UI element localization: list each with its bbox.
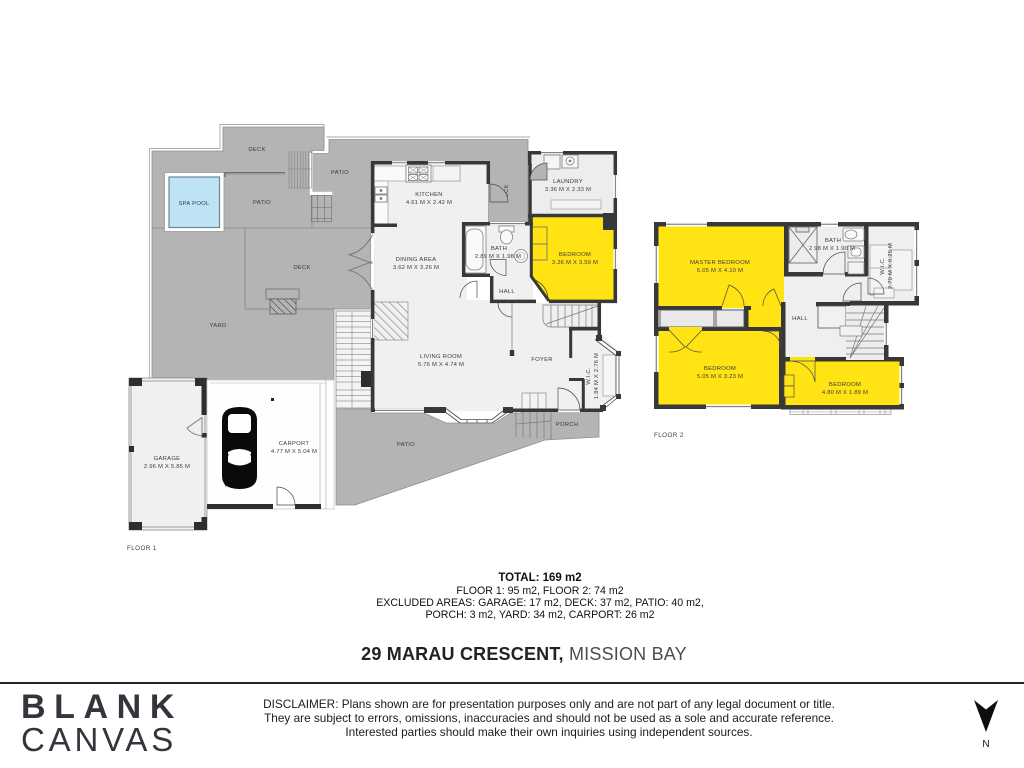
svg-text:TOTAL: 169 m2: TOTAL: 169 m2	[498, 572, 581, 584]
svg-text:DECK: DECK	[248, 147, 265, 153]
svg-text:CARPORT: CARPORT	[279, 441, 310, 447]
svg-text:W.I.C.: W.I.C.	[586, 367, 592, 385]
svg-text:2.98 M X 1.90 M: 2.98 M X 1.90 M	[809, 246, 855, 252]
svg-text:2.89 M X 1.98 M: 2.89 M X 1.98 M	[475, 254, 521, 260]
svg-text:FLOOR 1: 95 m2, FLOOR 2: 74 m2: FLOOR 1: 95 m2, FLOOR 2: 74 m2	[456, 585, 623, 597]
svg-text:DECK: DECK	[293, 265, 310, 271]
svg-text:HALL: HALL	[499, 289, 515, 295]
svg-text:SPA POOL: SPA POOL	[178, 201, 210, 207]
svg-text:W.I.C.: W.I.C.	[880, 257, 886, 275]
svg-text:PATIO: PATIO	[397, 442, 415, 448]
svg-text:DISCLAIMER: Plans shown are fo: DISCLAIMER: Plans shown are for presenta…	[263, 697, 835, 711]
svg-text:Interested parties should make: Interested parties should make their own…	[345, 725, 752, 739]
svg-text:FLOOR 2: FLOOR 2	[654, 432, 684, 439]
svg-text:4.80 M X 1.89 M: 4.80 M X 1.89 M	[822, 390, 868, 396]
svg-text:HALL: HALL	[792, 316, 808, 322]
svg-text:BATH: BATH	[825, 238, 841, 244]
svg-text:LIVING ROOM: LIVING ROOM	[420, 354, 462, 360]
svg-text:4.77 M X 5.04 M: 4.77 M X 5.04 M	[271, 449, 317, 455]
svg-text:5.05 M X 4.10 M: 5.05 M X 4.10 M	[697, 268, 743, 274]
svg-text:BATH: BATH	[491, 246, 507, 252]
svg-text:1.84 M X 2.76 M: 1.84 M X 2.76 M	[594, 353, 600, 399]
svg-text:FOYER: FOYER	[531, 357, 553, 363]
svg-text:PORCH: PORCH	[556, 422, 579, 428]
svg-text:N: N	[982, 739, 989, 750]
svg-text:BEDROOM: BEDROOM	[829, 382, 861, 388]
svg-text:MASTER BEDROOM: MASTER BEDROOM	[690, 260, 750, 266]
svg-text:YARD: YARD	[210, 323, 227, 329]
svg-text:GARAGE: GARAGE	[154, 456, 181, 462]
svg-text:2.70 M X 0.25 M: 2.70 M X 0.25 M	[888, 243, 894, 289]
svg-text:CANVAS: CANVAS	[21, 721, 177, 758]
svg-text:PATIO: PATIO	[253, 200, 271, 206]
svg-text:5.76 M X 4.74 M: 5.76 M X 4.74 M	[418, 362, 464, 368]
svg-text:DINING AREA: DINING AREA	[396, 257, 437, 263]
svg-text:EXCLUDED AREAS: GARAGE: 17 m2,: EXCLUDED AREAS: GARAGE: 17 m2, DECK: 37 …	[376, 597, 704, 609]
svg-text:FLOOR 1: FLOOR 1	[127, 545, 157, 552]
svg-text:4.61 M X 2.42 M: 4.61 M X 2.42 M	[406, 200, 452, 206]
svg-text:5.05 M X 3.23 M: 5.05 M X 3.23 M	[697, 374, 743, 380]
svg-text:KITCHEN: KITCHEN	[415, 192, 443, 198]
svg-text:They are subject to errors, om: They are subject to errors, omissions, i…	[264, 711, 834, 725]
svg-text:3.36 M X 3.59 M: 3.36 M X 3.59 M	[552, 260, 598, 266]
svg-text:BEDROOM: BEDROOM	[704, 366, 736, 372]
svg-text:PATIO: PATIO	[331, 170, 349, 176]
svg-text:PORCH: 3 m2, YARD: 34 m2, CARP: PORCH: 3 m2, YARD: 34 m2, CARPORT: 26 m2	[425, 609, 654, 621]
svg-text:3.36 M X 2.33 M: 3.36 M X 2.33 M	[545, 187, 591, 193]
svg-text:LAUNDRY: LAUNDRY	[553, 179, 583, 185]
svg-text:BEDROOM: BEDROOM	[559, 252, 591, 258]
svg-text:3.62 M X 3.26 M: 3.62 M X 3.26 M	[393, 265, 439, 271]
svg-text:29 MARAU CRESCENT, MISSION BAY: 29 MARAU CRESCENT, MISSION BAY	[361, 644, 687, 664]
svg-text:2.96 M X 5.85 M: 2.96 M X 5.85 M	[144, 464, 190, 470]
